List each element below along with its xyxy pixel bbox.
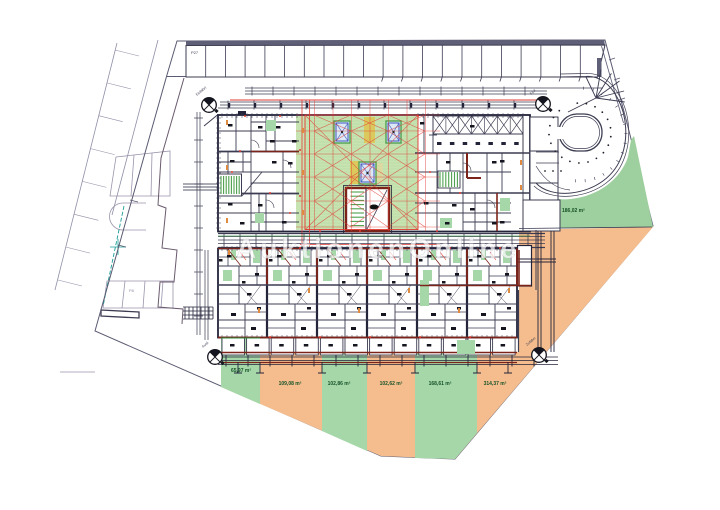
svg-text:P27: P27	[191, 50, 199, 55]
svg-text:102,86 m²: 102,86 m²	[328, 381, 351, 387]
svg-text:102,62 m²: 102,62 m²	[380, 381, 403, 387]
svg-text:314,37 m²: 314,37 m²	[484, 381, 507, 387]
svg-text:109,08 m²: 109,08 m²	[279, 381, 302, 387]
svg-text:168,61 m²: 168,61 m²	[429, 381, 452, 387]
svg-text:186,02 m²: 186,02 m²	[562, 208, 585, 214]
svg-text:P8: P8	[129, 288, 135, 293]
svg-text:AuktionenOnline: AuktionenOnline	[236, 233, 520, 264]
svg-text:65,97 m²: 65,97 m²	[231, 368, 251, 374]
